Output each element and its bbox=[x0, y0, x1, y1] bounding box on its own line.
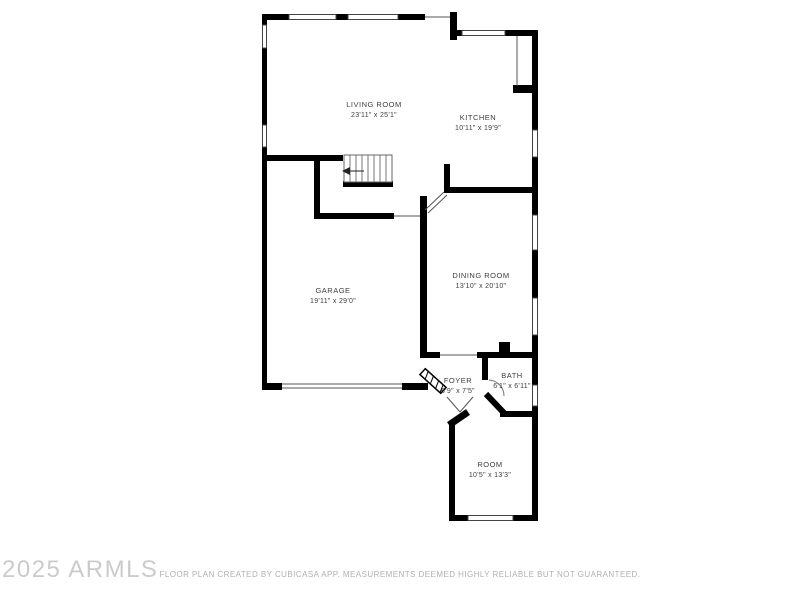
wall-garage-dining bbox=[420, 196, 427, 357]
room-name: ROOM bbox=[469, 460, 511, 471]
door-swing-room-1 bbox=[447, 397, 460, 412]
room-name: DINING ROOM bbox=[452, 271, 509, 282]
wall-bath-diagonal bbox=[486, 394, 504, 413]
room-label-bath: BATH 6'1" x 6'11" bbox=[493, 371, 531, 391]
window-dining-right-1 bbox=[533, 215, 538, 250]
walls bbox=[262, 12, 538, 521]
floor-plan-drawing bbox=[0, 0, 800, 600]
door-swing-room-2 bbox=[460, 397, 473, 412]
room-label-kitchen: KITCHEN 10'11" x 19'9" bbox=[455, 113, 501, 133]
windows bbox=[263, 15, 538, 521]
wall-room-left bbox=[449, 422, 455, 521]
window-bath-right bbox=[533, 385, 538, 406]
room-name: GARAGE bbox=[310, 286, 356, 297]
wall-left bbox=[262, 14, 267, 390]
room-dimensions: 23'11" x 25'1" bbox=[346, 111, 402, 120]
wall-room-diagonal bbox=[449, 412, 468, 425]
room-label-living-room: LIVING ROOM 23'11" x 25'1" bbox=[346, 100, 402, 120]
wall-stair-west bbox=[314, 155, 320, 219]
stairs bbox=[342, 155, 392, 182]
window-kitchen-right bbox=[533, 130, 538, 157]
window-living-top-2 bbox=[348, 15, 398, 20]
room-dimensions: 10'11" x 19'9" bbox=[455, 124, 501, 133]
wall-garage-bottom-left bbox=[262, 383, 282, 390]
room-dimensions: 6'1" x 6'11" bbox=[493, 382, 531, 391]
room-label-dining-room: DINING ROOM 13'10" x 20'10" bbox=[452, 271, 509, 291]
wall-right bbox=[532, 31, 538, 521]
disclaimer-text: FLOOR PLAN CREATED BY CUBICASA APP. MEAS… bbox=[0, 570, 800, 579]
room-dimensions: 19'11" x 29'0" bbox=[310, 297, 356, 306]
wall-top bbox=[262, 14, 425, 20]
room-name: KITCHEN bbox=[455, 113, 501, 124]
window-kitchen-top bbox=[462, 31, 505, 36]
wall-bath-left bbox=[482, 352, 488, 380]
room-dimensions: 13'10" x 20'10" bbox=[452, 282, 509, 291]
room-name: BATH bbox=[493, 371, 531, 382]
wall-stair-south bbox=[314, 213, 394, 219]
room-label-foyer: FOYER 6'9" x 7'5" bbox=[441, 376, 475, 396]
wall-nook-nub bbox=[513, 85, 532, 93]
wall-garage-bottom-right bbox=[402, 383, 428, 390]
room-name: LIVING ROOM bbox=[346, 100, 402, 111]
wall-foyer-top-left bbox=[420, 352, 440, 358]
wall-room-top bbox=[500, 411, 538, 417]
window-living-left-2 bbox=[263, 125, 267, 147]
floor-plan-page: LIVING ROOM 23'11" x 25'1" KITCHEN 10'11… bbox=[0, 0, 800, 600]
window-room-bottom bbox=[468, 516, 513, 521]
room-dimensions: 10'5" x 13'3" bbox=[469, 471, 511, 480]
window-living-top-1 bbox=[289, 15, 336, 20]
room-name: FOYER bbox=[441, 376, 475, 387]
wall-kitchen-dining bbox=[444, 187, 538, 193]
wall-living-bottom bbox=[262, 155, 343, 161]
window-living-left-1 bbox=[263, 25, 267, 48]
room-dimensions: 6'9" x 7'5" bbox=[441, 387, 475, 396]
room-label-garage: GARAGE 19'11" x 29'0" bbox=[310, 286, 356, 306]
room-label-room: ROOM 10'5" x 13'3" bbox=[469, 460, 511, 480]
window-dining-right-2 bbox=[533, 298, 538, 335]
wall-dining-nub bbox=[499, 342, 510, 354]
